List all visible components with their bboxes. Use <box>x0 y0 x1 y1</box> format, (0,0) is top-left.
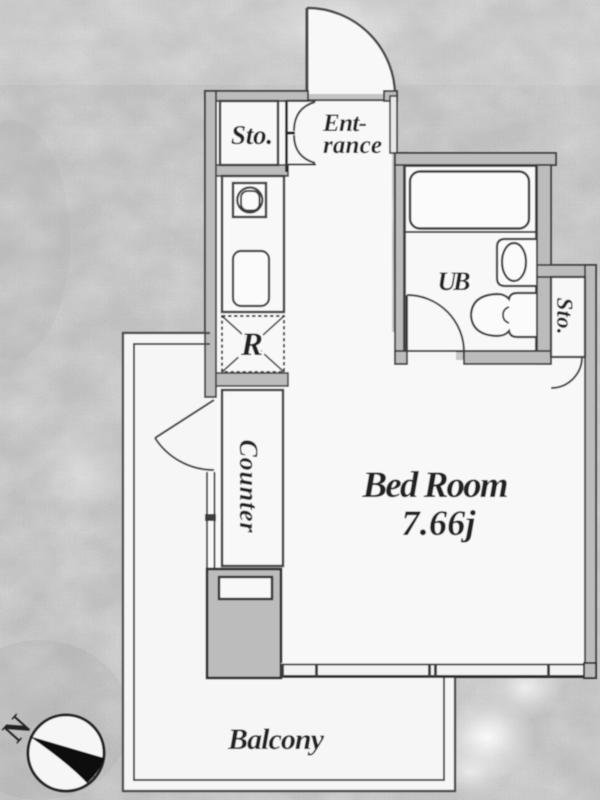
svg-text:UB: UB <box>438 267 471 296</box>
svg-text:Bed Room: Bed Room <box>362 465 509 506</box>
svg-text:Balcony: Balcony <box>227 723 325 756</box>
svg-text:Sto.: Sto. <box>552 298 577 335</box>
svg-text:7.66j: 7.66j <box>402 503 477 543</box>
svg-text:Counter: Counter <box>234 440 263 534</box>
svg-text:R: R <box>240 327 263 363</box>
svg-text:rance: rance <box>323 132 382 159</box>
svg-text:Sto.: Sto. <box>231 120 273 150</box>
